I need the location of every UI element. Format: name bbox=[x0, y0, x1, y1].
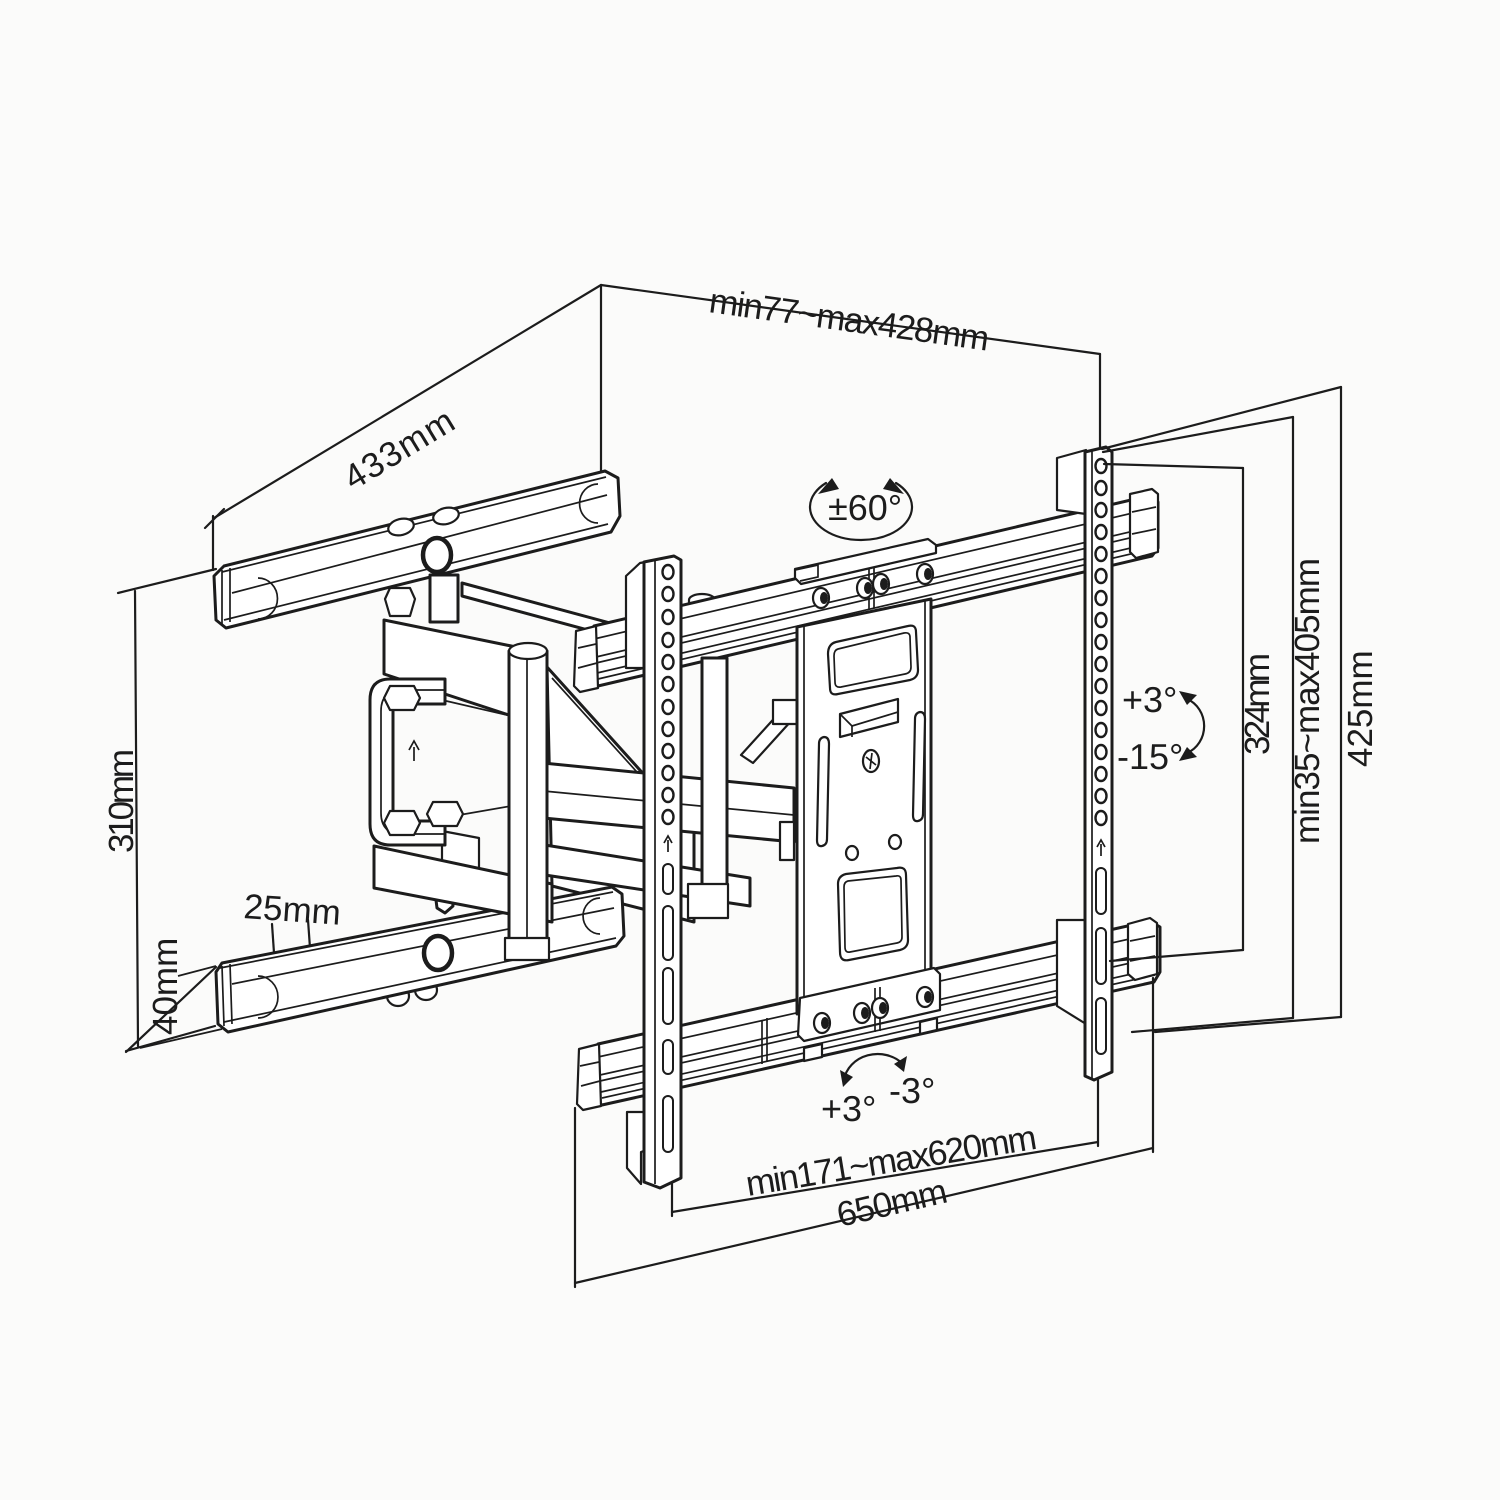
svg-text:425mm: 425mm bbox=[1341, 650, 1380, 767]
svg-text:25mm: 25mm bbox=[242, 887, 342, 933]
svg-text:-15°: -15° bbox=[1117, 736, 1183, 777]
svg-text:40mm: 40mm bbox=[146, 938, 185, 1035]
svg-text:±60°: ±60° bbox=[828, 487, 902, 528]
svg-text:310mm: 310mm bbox=[102, 749, 141, 853]
svg-text:-3°: -3° bbox=[889, 1070, 935, 1111]
svg-text:+3°: +3° bbox=[821, 1088, 876, 1129]
svg-text:min35~max405mm: min35~max405mm bbox=[1288, 558, 1327, 844]
svg-text:+3°: +3° bbox=[1122, 679, 1177, 720]
svg-text:324mm: 324mm bbox=[1238, 653, 1277, 755]
